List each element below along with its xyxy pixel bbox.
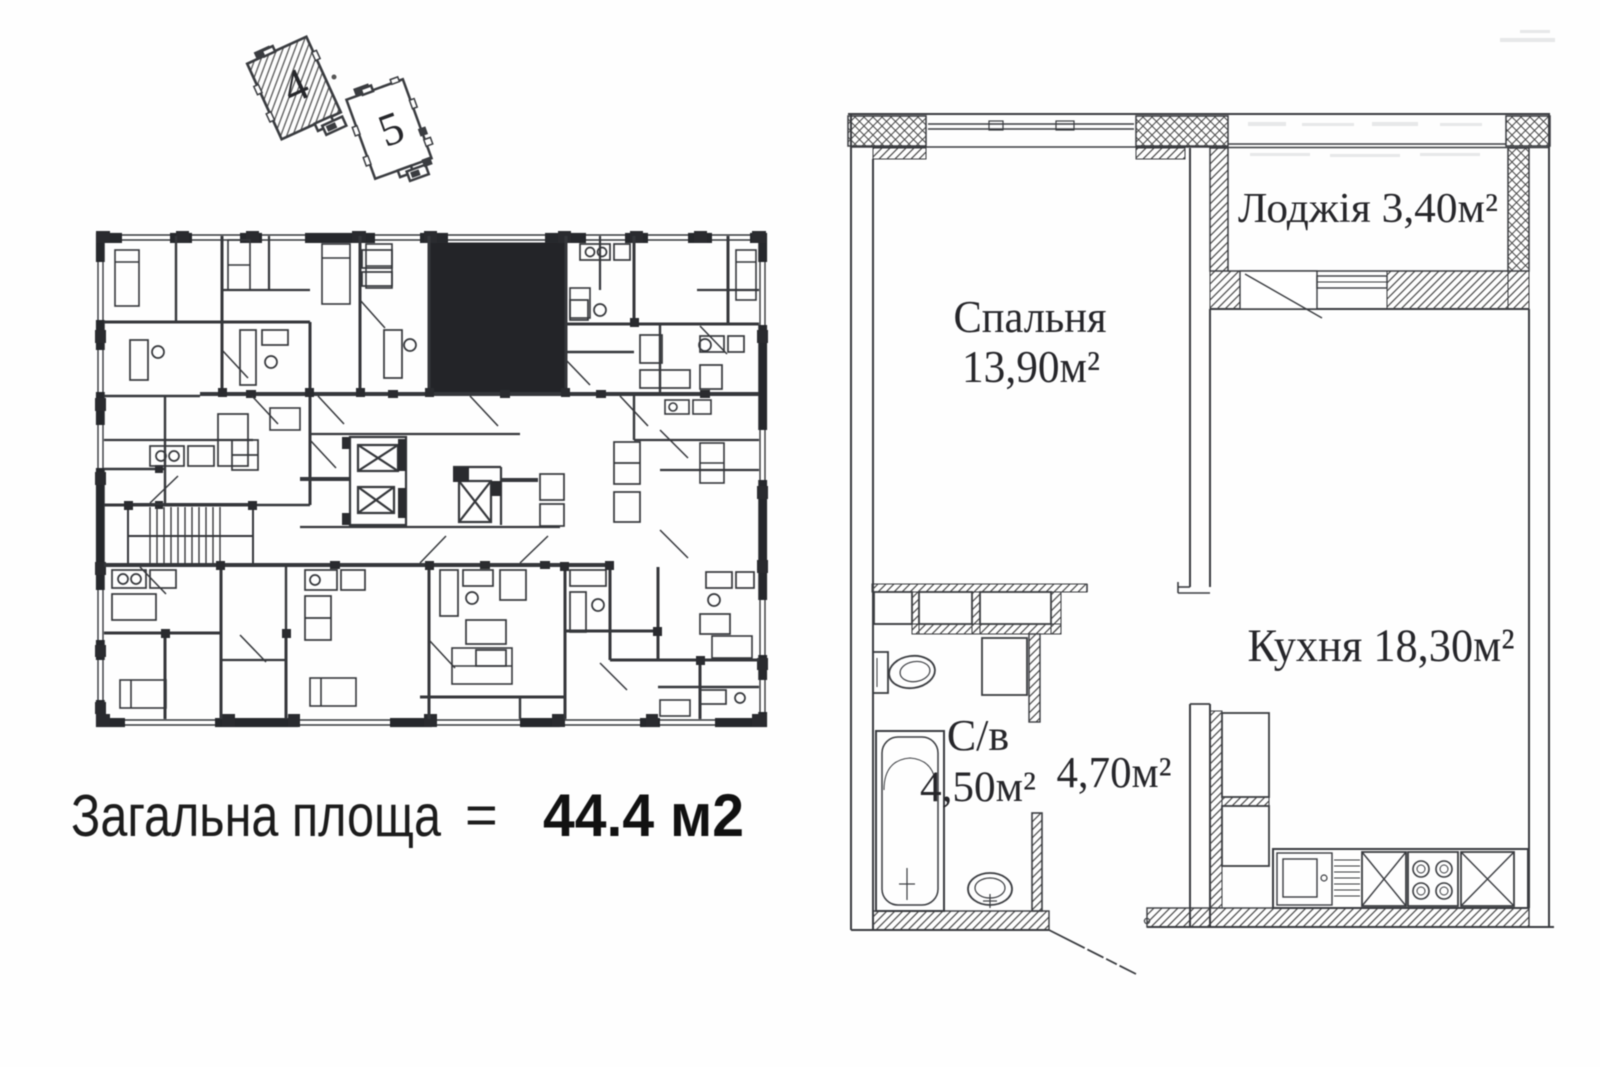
svg-text:Загальна площа: Загальна площа: [71, 783, 441, 849]
svg-text:44.4 м2: 44.4 м2: [543, 782, 744, 849]
svg-text:С/в: С/в: [947, 711, 1009, 760]
svg-text:4,50м²: 4,50м²: [920, 764, 1036, 811]
svg-text:=: =: [465, 783, 498, 846]
svg-text:13,90м²: 13,90м²: [962, 341, 1100, 392]
svg-text:Лоджія 3,40м²: Лоджія 3,40м²: [1238, 186, 1498, 232]
svg-text:4,70м²: 4,70м²: [1057, 748, 1172, 797]
svg-text:Кухня 18,30м²: Кухня 18,30м²: [1248, 620, 1515, 672]
svg-text:Спальня: Спальня: [954, 291, 1107, 342]
